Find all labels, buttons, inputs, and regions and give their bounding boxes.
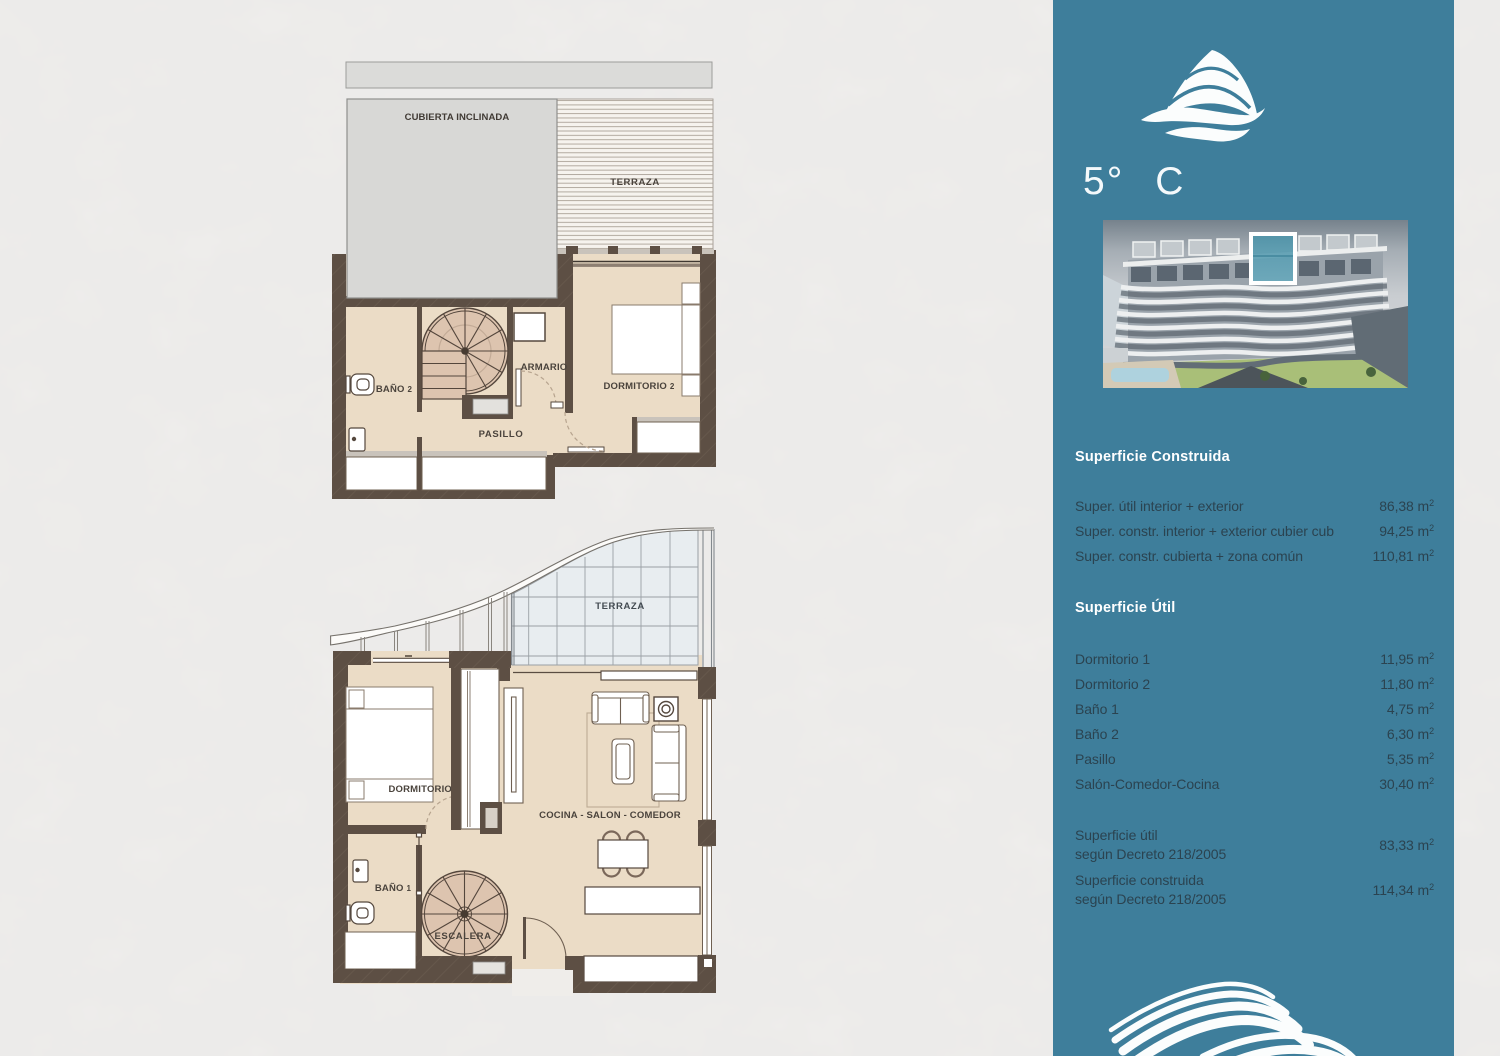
svg-text:TERRAZA: TERRAZA — [595, 601, 645, 612]
svg-text:DORMITORIO 2: DORMITORIO 2 — [603, 381, 674, 392]
svg-text:COCINA - SALON - COMEDOR: COCINA - SALON - COMEDOR — [539, 810, 681, 821]
svg-text:BAÑO 1: BAÑO 1 — [375, 883, 412, 894]
svg-text:ARMARIO: ARMARIO — [521, 362, 568, 373]
svg-text:ESCALERA: ESCALERA — [434, 931, 491, 942]
svg-text:DORMITORIO 1: DORMITORIO 1 — [388, 784, 459, 795]
svg-text:BAÑO 2: BAÑO 2 — [376, 384, 413, 395]
svg-text:PASILLO: PASILLO — [479, 429, 524, 440]
svg-text:TERRAZA: TERRAZA — [610, 177, 660, 188]
svg-text:CUBIERTA INCLINADA: CUBIERTA INCLINADA — [405, 112, 510, 123]
